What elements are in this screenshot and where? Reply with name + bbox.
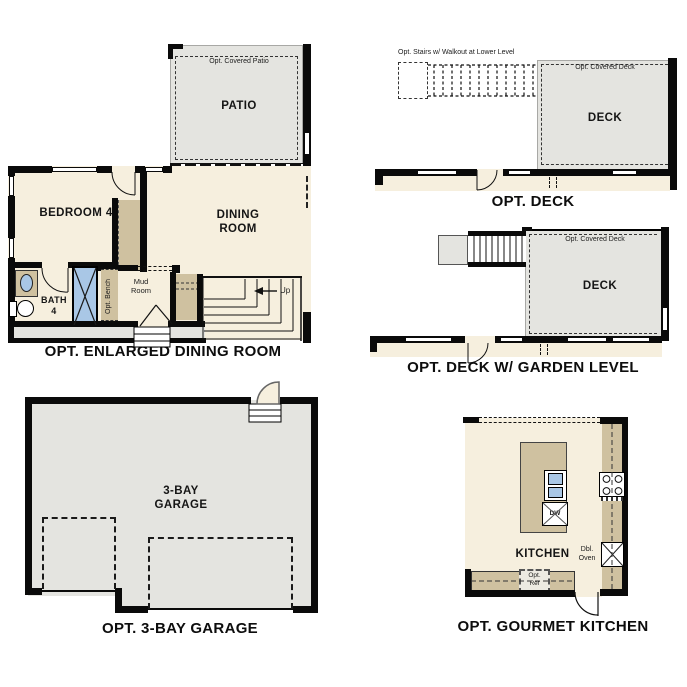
deck-label: DECK xyxy=(570,111,640,125)
garage-bay-dashed xyxy=(148,537,293,609)
covered-patio-note: Opt. Covered Patio xyxy=(180,58,298,67)
porch xyxy=(14,327,205,338)
garage-label: 3-BAY GARAGE xyxy=(116,484,246,513)
sink-basin xyxy=(548,487,563,498)
kitchen-opening-dashes xyxy=(479,417,600,418)
window xyxy=(612,337,650,342)
wall xyxy=(465,590,575,597)
wall xyxy=(463,417,479,423)
window xyxy=(52,167,97,172)
wall xyxy=(522,227,532,231)
window xyxy=(304,132,310,155)
window xyxy=(662,307,668,331)
wall xyxy=(168,44,173,59)
wall xyxy=(163,166,172,173)
wall xyxy=(25,397,251,404)
window xyxy=(145,167,163,172)
plan-cut-dashes xyxy=(306,176,308,208)
window xyxy=(405,337,452,342)
cased-opening-dashes xyxy=(540,344,548,355)
covered-deck-note: Opt. Covered Deck xyxy=(536,236,654,245)
floor-strip xyxy=(370,343,662,357)
wall xyxy=(293,606,318,613)
wall xyxy=(25,588,42,595)
wall xyxy=(8,166,15,176)
plan-title: OPT. 3-BAY GARAGE xyxy=(55,620,305,637)
wall xyxy=(600,589,628,596)
up-label: Up xyxy=(280,286,300,296)
coat-closet xyxy=(176,274,197,320)
window xyxy=(508,170,531,175)
mudroom-opening-dashes xyxy=(138,270,172,271)
mudroom-opening-dashes xyxy=(138,266,172,267)
wall xyxy=(25,397,32,595)
door-opening xyxy=(465,336,495,343)
deck-label: DECK xyxy=(565,279,635,293)
mud-room-label: Mud Room xyxy=(118,277,164,296)
dashed-stairs xyxy=(428,65,537,96)
stair-landing xyxy=(438,235,468,265)
window xyxy=(500,337,523,342)
stairs-walkout-note: Opt. Stairs w/ Walkout at Lower Level xyxy=(398,49,538,58)
wall xyxy=(197,274,203,322)
kitchen-label: KITCHEN xyxy=(500,547,585,561)
cooktop-vent-strip xyxy=(601,497,623,501)
wall xyxy=(303,312,311,343)
cooktop xyxy=(599,472,625,497)
window xyxy=(612,170,637,175)
garage-door-threshold xyxy=(42,590,115,592)
toilet-bowl xyxy=(17,300,34,317)
plan-title: OPT. GOURMET KITCHEN xyxy=(448,618,658,635)
door-opening xyxy=(477,169,503,176)
shower xyxy=(72,266,98,327)
double-oven xyxy=(601,542,624,567)
toilet-tank xyxy=(9,301,17,317)
dining-label: DINING ROOM xyxy=(200,208,276,237)
wall xyxy=(370,336,377,352)
bath-sink xyxy=(20,274,33,292)
patio-label: PATIO xyxy=(200,99,278,113)
window xyxy=(567,337,607,342)
stair-landing-dashed xyxy=(398,62,428,99)
wall xyxy=(311,397,318,613)
opt-ref-label: Opt. Ref xyxy=(521,572,548,588)
wall xyxy=(375,169,383,185)
staircase xyxy=(468,231,526,267)
floorplan-options-sheet: Opt. Covered Patio PATIO Opt. 12' Stacki… xyxy=(0,0,687,687)
plan-title: OPT. DECK W/ GARDEN LEVEL xyxy=(398,359,648,376)
wall xyxy=(8,262,42,268)
kitchen-opening-dashes xyxy=(479,422,600,423)
covered-deck-note: Opt. Covered Deck xyxy=(546,64,664,73)
cased-opening-dashes xyxy=(549,177,557,188)
window xyxy=(9,176,14,196)
plan-title: OPT. ENLARGED DINING ROOM xyxy=(13,343,313,360)
wall xyxy=(115,588,122,613)
dishwasher-label: DW xyxy=(544,510,566,518)
bedroom-label: BEDROOM 4 xyxy=(28,206,124,220)
sink-basin xyxy=(548,473,563,485)
wall xyxy=(122,606,148,613)
floor-strip xyxy=(375,176,670,191)
wall xyxy=(8,196,15,238)
window xyxy=(9,238,14,258)
plan-title: OPT. DECK xyxy=(433,193,633,210)
window xyxy=(417,170,457,175)
wall xyxy=(140,172,147,272)
garage-bay-dashed xyxy=(42,517,116,589)
opt-bench-note: Opt. Bench xyxy=(105,273,112,319)
wall xyxy=(97,166,112,173)
door-opening xyxy=(575,590,602,597)
bath-label: BATH 4 xyxy=(36,295,72,318)
